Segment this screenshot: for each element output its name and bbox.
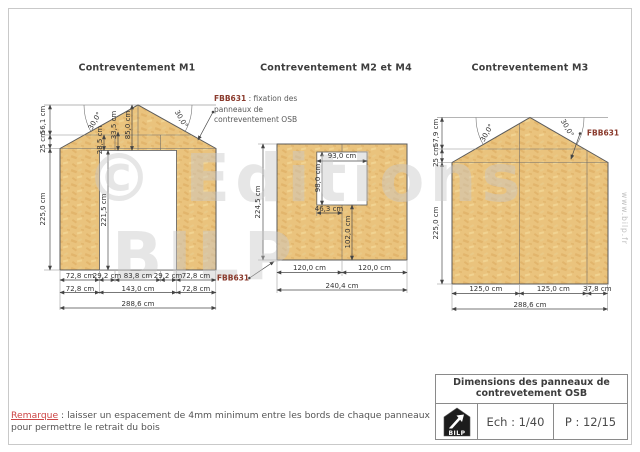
dim-label: 25 cm — [39, 131, 47, 153]
dim-label: 120,0 cm — [293, 264, 326, 272]
dim-label: 125,0 cm — [469, 285, 502, 293]
title-block: Dimensions des panneaux de contrevetemen… — [435, 374, 628, 440]
dim-label: 46,3 cm — [315, 205, 343, 213]
dim-label: 221,5 cm — [100, 194, 108, 227]
bilp-url-watermark: www.bilp.fr — [620, 192, 629, 245]
dim-label: 25 cm — [432, 145, 440, 167]
fbb631-callout: FBB631 : fixation des panneaux de contre… — [214, 94, 297, 126]
dim-label: 83,8 cm — [124, 272, 152, 280]
dim-label: 85,0 cm — [124, 111, 132, 139]
bilp-logo: BILP — [436, 404, 478, 440]
dim-label: 102,0 cm — [344, 216, 352, 249]
page-number: P : 12/15 — [554, 404, 627, 440]
dim-label: 120,0 cm — [358, 264, 391, 272]
dim-label: 240,4 cm — [326, 282, 359, 290]
remark-label: Remarque — [11, 410, 58, 421]
dim-label: 72,8 cm — [182, 285, 210, 293]
dim-label: 143,0 cm — [122, 285, 155, 293]
dim-label: 225,0 cm — [39, 193, 47, 226]
m1-title: Contreventement M1 — [79, 63, 196, 74]
dim-label: 93,0 cm — [328, 152, 356, 160]
fbb631-code: FBB631 — [214, 94, 246, 103]
m3-panel-drawing — [437, 118, 608, 285]
dim-label: 72,8 cm — [66, 272, 94, 280]
scale-value: Ech : 1/40 — [478, 404, 554, 440]
m3-title: Contreventement M3 — [472, 63, 589, 74]
dim-label: 288,6 cm — [514, 301, 547, 309]
dim-label: 98,0 cm — [314, 164, 322, 192]
m2-title: Contreventement M2 et M4 — [260, 63, 412, 74]
dim-label: 225,0 cm — [432, 207, 440, 240]
remark: Remarque : laisser un espacement de 4mm … — [11, 410, 447, 433]
title-block-title: Dimensions des panneaux de contrevetemen… — [436, 375, 627, 404]
dim-label: 224,5 cm — [254, 186, 262, 219]
dim-label: 72,8 cm — [66, 285, 94, 293]
dim-label: 72,8 cm — [182, 272, 210, 280]
plan-page: © Editions BILP www.bilp.fr Contreventem… — [0, 0, 640, 452]
fbb631-label: FBB631 — [217, 274, 249, 283]
dim-label: 57,9 cm — [432, 119, 440, 147]
dim-label: 28,5 cm — [96, 126, 104, 154]
dim-label: 288,6 cm — [122, 300, 155, 308]
dim-label: 29,2 cm — [93, 272, 121, 280]
dim-label: 37,8 cm — [583, 285, 611, 293]
dim-label: 33,5 cm — [110, 111, 118, 139]
dim-label: 29,2 cm — [154, 272, 182, 280]
bilp-logo-text: BILP — [444, 430, 470, 437]
fbb631-label: FBB631 — [587, 129, 619, 138]
m2-panel-drawing — [277, 144, 407, 260]
dim-label: 125,0 cm — [537, 285, 570, 293]
